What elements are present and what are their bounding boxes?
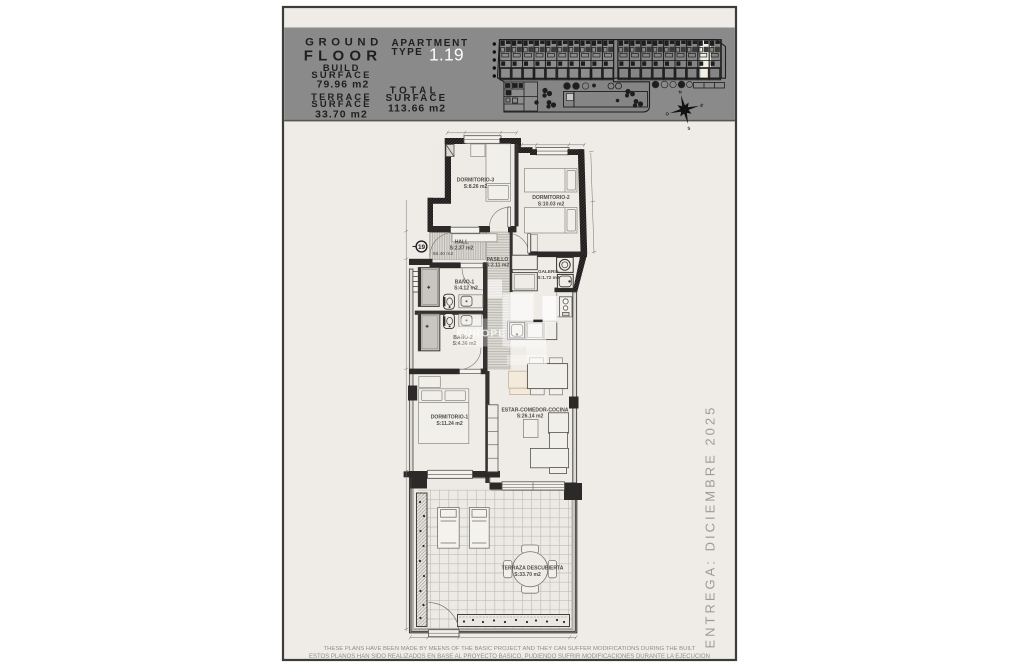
svg-text:ESTOS PLANOS HAN SIDO REALIZAD: ESTOS PLANOS HAN SIDO REALIZADOS EN BASE… [309, 654, 710, 660]
svg-text:113.66 m2: 113.66 m2 [388, 104, 446, 115]
svg-text:SURFACE: SURFACE [311, 69, 371, 80]
svg-text:68.40 m2: 68.40 m2 [433, 251, 454, 257]
svg-text:EUROPE: EUROPE [457, 329, 507, 340]
svg-text:N: N [678, 89, 682, 94]
svg-text:33.70 m2: 33.70 m2 [315, 110, 368, 121]
svg-text:GALERIA: GALERIA [538, 269, 560, 274]
svg-text:S:26.14 m2: S:26.14 m2 [517, 414, 544, 420]
svg-text:DORMITORIO-3: DORMITORIO-3 [457, 178, 495, 184]
svg-text:S:8.26 m2: S:8.26 m2 [464, 184, 488, 190]
svg-text:REAL ESTATE: REAL ESTATE [508, 345, 549, 350]
svg-text:DORMITORIO-1: DORMITORIO-1 [431, 415, 469, 421]
svg-text:TERRAZA DESCUBIERTA: TERRAZA DESCUBIERTA [502, 566, 564, 572]
svg-text:S: S [687, 126, 690, 131]
svg-text:S:2.11 m2: S:2.11 m2 [486, 262, 510, 268]
svg-text:BAÑO-1: BAÑO-1 [455, 279, 475, 286]
svg-text:79.96 m2: 79.96 m2 [317, 80, 370, 91]
svg-text:SURFACE: SURFACE [386, 93, 448, 104]
svg-text:S:2.37 m2: S:2.37 m2 [450, 246, 474, 252]
svg-text:S:33.70 m2: S:33.70 m2 [514, 572, 541, 578]
svg-text:S:11.24 m2: S:11.24 m2 [436, 421, 463, 427]
svg-text:TYPE: TYPE [392, 47, 424, 58]
svg-text:SURFACE: SURFACE [311, 98, 371, 109]
svg-text:S:4.12 m2: S:4.12 m2 [454, 286, 478, 292]
svg-text:1.19: 1.19 [429, 44, 464, 64]
svg-text:ENTREGA: DICIEMBRE 2025: ENTREGA: DICIEMBRE 2025 [703, 405, 718, 649]
svg-text:S:10.03 m2: S:10.03 m2 [538, 202, 565, 208]
svg-text:THESE PLANS HAVE BEEN MADE BY: THESE PLANS HAVE BEEN MADE BY MEENS OF T… [324, 646, 696, 652]
svg-text:DORMITORIO-2: DORMITORIO-2 [532, 195, 570, 201]
svg-text:S:1.72 m2: S:1.72 m2 [538, 275, 560, 280]
svg-text:19: 19 [418, 244, 426, 251]
